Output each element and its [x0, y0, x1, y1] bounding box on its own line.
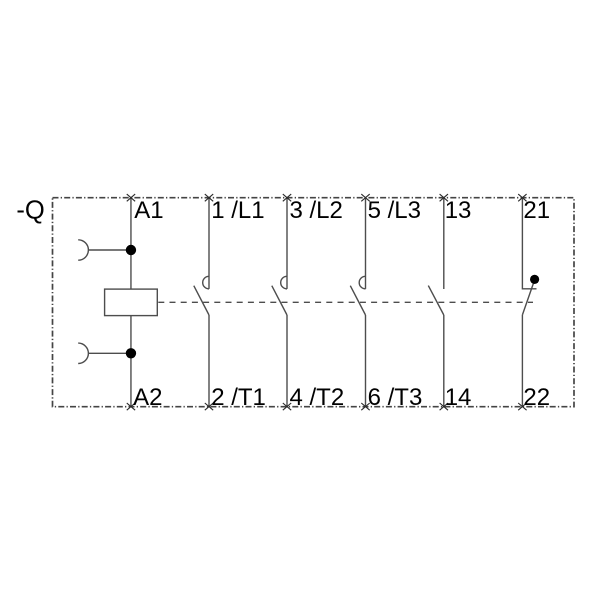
- svg-text:2 /T1: 2 /T1: [211, 384, 266, 411]
- svg-text:A2: A2: [133, 384, 162, 411]
- svg-text:A1: A1: [134, 197, 163, 224]
- svg-text:21: 21: [523, 197, 550, 224]
- svg-text:6 /T3: 6 /T3: [368, 384, 423, 411]
- svg-text:22: 22: [523, 384, 550, 411]
- svg-text:3 /L2: 3 /L2: [290, 197, 343, 224]
- svg-text:14: 14: [445, 384, 472, 411]
- svg-text:-Q: -Q: [16, 196, 44, 224]
- svg-text:5 /L3: 5 /L3: [368, 197, 421, 224]
- svg-text:13: 13: [445, 197, 472, 224]
- svg-text:1 /L1: 1 /L1: [211, 197, 264, 224]
- svg-text:4 /T2: 4 /T2: [290, 384, 345, 411]
